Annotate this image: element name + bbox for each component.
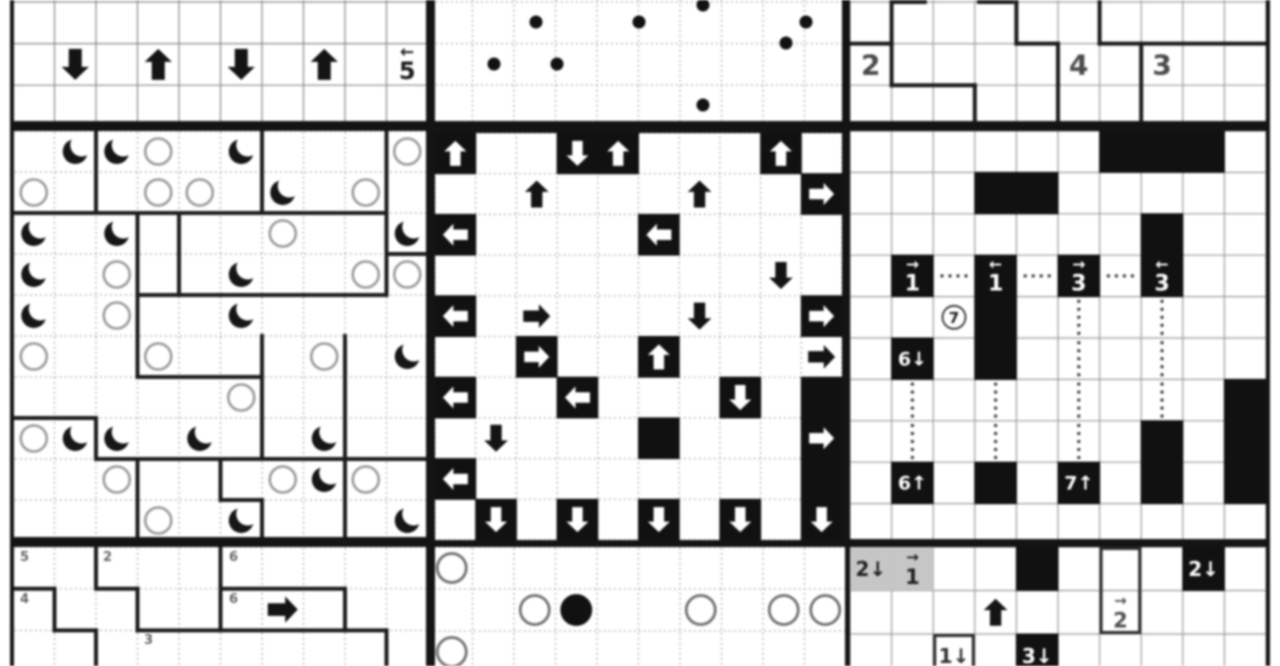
galaxy-dot-icon (697, 0, 710, 12)
galaxy-dot-icon (633, 16, 646, 29)
black-arrow-up-icon (145, 49, 172, 80)
white-arrow-up-cell (435, 133, 477, 175)
sun-circle-icon (21, 344, 47, 370)
white-arrow-down-cell (557, 133, 599, 175)
black-cell (1224, 462, 1267, 504)
galaxy-dot-icon (697, 99, 710, 112)
puzzle-sheet: ←52437→1←1→3←36↓6↑7↑5264632↓→12↓→21↓3↓ (0, 0, 1280, 666)
clue-cell: 7↑ (1058, 462, 1101, 504)
black-cell (974, 172, 1017, 214)
black-cell (801, 458, 843, 500)
black-arrow-down-icon (769, 262, 793, 289)
white-circle-icon (437, 554, 466, 583)
clue-text: 1↓ (939, 644, 970, 666)
dots-vertical-icon (994, 383, 997, 418)
moon-icon (21, 257, 52, 288)
moon-icon (104, 421, 135, 452)
dots-vertical-icon (911, 383, 914, 418)
dots-vertical-icon (1077, 383, 1080, 418)
moon-icon (395, 339, 426, 370)
dots-horizontal-icon (1024, 274, 1051, 277)
clue-cell: 4 (1069, 48, 1088, 81)
clue-arrow-icon: → (906, 548, 919, 566)
black-cell (1141, 462, 1184, 504)
clue-cell: →1 (905, 548, 920, 589)
white-arrow-up-cell (597, 133, 639, 175)
clue-cell: ←3 (1141, 254, 1184, 297)
white-arrow-down-cell (557, 499, 599, 541)
white-arrow-left-cell (638, 214, 680, 256)
clue-cell: 2↓ (855, 557, 886, 581)
white-arrow-right-cell (801, 173, 843, 215)
region-size-label: 4 (20, 592, 29, 607)
clue-cell: ←1 (974, 254, 1017, 297)
black-cell (1182, 131, 1225, 173)
white-arrow-left-cell (557, 377, 599, 419)
moon-icon (21, 216, 52, 247)
galaxy-dot-icon (488, 58, 501, 71)
moon-icon (395, 216, 426, 247)
moon-icon (270, 175, 301, 206)
black-cell (801, 377, 843, 419)
clue-text: 2↓ (855, 557, 886, 581)
white-circle-icon (811, 596, 840, 625)
sun-circle-icon (270, 221, 296, 247)
puzzle-middle-left-moon-sun[interactable] (10, 127, 431, 543)
clue-text: 1 (905, 565, 920, 589)
black-arrow-down-icon (688, 303, 712, 330)
white-arrow-right-cell (801, 417, 843, 459)
region-size-label: 6 (229, 592, 238, 607)
puzzle-top-right-number-regions[interactable]: 243 (846, 0, 1270, 127)
sun-circle-icon (104, 262, 130, 288)
clue-text: 2 (1113, 608, 1128, 632)
dots-vertical-icon (1161, 383, 1164, 418)
black-cell (638, 417, 680, 459)
black-cell (1224, 379, 1267, 421)
sun-circle-icon (145, 508, 171, 534)
clue-text: 1 (988, 271, 1003, 296)
clue-cell: 2 (861, 48, 880, 81)
sun-circle-icon (353, 262, 379, 288)
clue-cell: 3↓ (1016, 634, 1059, 666)
circled-number: 7 (943, 306, 966, 329)
dots-vertical-icon (911, 424, 914, 459)
sun-circle-icon (145, 344, 171, 370)
clue-text: 4 (1069, 48, 1088, 81)
white-arrow-down-cell (719, 499, 761, 541)
black-arrow-right-icon (523, 304, 550, 328)
galaxy-dot-icon (780, 37, 793, 50)
clue-text: 3 (1152, 48, 1171, 81)
white-arrow-left-cell (435, 458, 477, 500)
moon-icon (63, 134, 94, 165)
clue-cell: 6↑ (891, 462, 934, 504)
moon-icon (229, 257, 260, 288)
galaxy-dot-icon (800, 16, 813, 29)
dots-vertical-icon (994, 424, 997, 459)
black-cell (974, 462, 1017, 504)
moon-icon (312, 462, 343, 493)
black-cell (1141, 131, 1184, 173)
sun-circle-icon (145, 180, 171, 206)
black-arrow-up-icon (311, 49, 338, 80)
sun-circle-icon (104, 303, 130, 329)
moon-icon (229, 503, 260, 534)
black-arrow-up-icon (688, 181, 712, 208)
sun-circle-icon (394, 262, 420, 288)
clue-text: 2 (861, 48, 880, 81)
clue-cell: →3 (1058, 254, 1101, 297)
black-cell (1141, 420, 1184, 462)
clue-cell: 6↓ (891, 338, 934, 380)
black-cell (1099, 131, 1142, 173)
white-circle-icon (437, 638, 466, 666)
region-size-label: 3 (144, 633, 153, 648)
white-circle-icon (769, 596, 798, 625)
puzzle-top-left-arrow-row[interactable]: ←5 (10, 0, 431, 127)
clue-text: 7 (949, 309, 959, 327)
clue-arrow-icon: → (1114, 591, 1127, 609)
black-cell (974, 338, 1017, 380)
sun-circle-icon (353, 467, 379, 493)
clue-cell: →2 (1113, 591, 1128, 632)
clue-text: 6↑ (898, 473, 927, 495)
black-circle-icon (562, 596, 591, 625)
clue-cell: 1↓ (939, 644, 970, 666)
black-cell (1016, 547, 1059, 592)
sun-circle-icon (21, 180, 47, 206)
sun-circle-icon (270, 467, 296, 493)
puzzle-middle-arrows-maze[interactable] (429, 127, 848, 546)
region-size-label: 6 (229, 550, 238, 565)
clue-cell: ←5 (399, 42, 416, 85)
dots-horizontal-icon (1107, 274, 1134, 277)
sun-circle-icon (311, 344, 337, 370)
moon-icon (63, 421, 94, 452)
clue-cell: 2↓ (1182, 547, 1225, 592)
white-arrow-down-cell (638, 499, 680, 541)
black-cell (1141, 213, 1184, 255)
moon-icon (104, 216, 135, 247)
clue-text: 6↓ (898, 349, 927, 371)
clue-cell: 3 (1152, 48, 1171, 81)
black-arrow-down-icon (228, 49, 255, 80)
white-arrow-left-cell (435, 377, 477, 419)
dots-vertical-icon (1161, 300, 1164, 335)
white-arrow-down-cell (801, 499, 843, 541)
white-circle-icon (686, 596, 715, 625)
clue-text: 3 (1071, 271, 1086, 296)
dots-vertical-icon (1077, 300, 1080, 335)
white-circle-icon (520, 596, 549, 625)
region-borders (13, 547, 387, 666)
black-arrow-down-icon (484, 425, 508, 452)
black-cell (1016, 172, 1059, 214)
black-arrow-right-icon (268, 596, 298, 622)
moon-icon (187, 421, 218, 452)
galaxy-dot-icon (551, 58, 564, 71)
clue-text: 7↑ (1064, 473, 1093, 495)
white-arrow-right-cell (516, 336, 558, 378)
puzzle-bottom-left-number-regions[interactable]: 526463 (10, 543, 431, 666)
clue-text: 3↓ (1022, 644, 1053, 666)
clue-text: 3 (1154, 271, 1169, 296)
region-size-label: 5 (20, 550, 29, 565)
white-arrow-down-cell (719, 377, 761, 419)
white-arrow-left-cell (435, 214, 477, 256)
moon-icon (21, 298, 52, 329)
moon-icon (229, 134, 260, 165)
sun-circle-icon (104, 467, 130, 493)
white-arrow-down-cell (475, 499, 517, 541)
black-arrow-right-icon (808, 345, 835, 369)
dots-vertical-icon (1161, 341, 1164, 376)
white-arrow-up-cell (760, 133, 802, 175)
sun-circle-icon (187, 180, 213, 206)
region-size-label: 2 (103, 550, 112, 565)
white-arrow-right-cell (801, 295, 843, 337)
dots-vertical-icon (1077, 424, 1080, 459)
white-arrow-up-cell (638, 336, 680, 378)
clue-text: 2↓ (1188, 557, 1219, 581)
black-arrow-down-icon (62, 49, 89, 80)
sun-circle-icon (21, 426, 47, 452)
clue-text: 1 (905, 271, 920, 296)
sun-circle-icon (353, 180, 379, 206)
galaxy-dot-icon (530, 16, 543, 29)
moon-icon (229, 298, 260, 329)
white-arrow-left-cell (435, 295, 477, 337)
sun-circle-icon (394, 139, 420, 165)
sun-circle-icon (145, 139, 171, 165)
clue-text: 5 (399, 57, 416, 85)
puzzle-top-middle-galaxy-dots[interactable] (431, 0, 846, 127)
puzzle-bottom-right-number-clues[interactable]: 2↓→12↓→21↓3↓ (846, 543, 1270, 666)
puzzle-middle-right-number-arrows[interactable]: 7→1←1→3←36↓6↑7↑ (846, 127, 1270, 545)
black-cell (974, 296, 1017, 338)
black-cell (1224, 420, 1267, 462)
dots-vertical-icon (1077, 341, 1080, 376)
black-arrow-up-icon (525, 181, 549, 208)
moon-icon (395, 503, 426, 534)
black-arrow-up-icon (984, 599, 1008, 626)
sun-circle-icon (228, 385, 254, 411)
puzzle-bottom-middle-circles[interactable] (429, 543, 848, 666)
moon-icon (104, 134, 135, 165)
moon-icon (312, 421, 343, 452)
dots-horizontal-icon (941, 274, 968, 277)
clue-cell: →1 (891, 254, 934, 297)
